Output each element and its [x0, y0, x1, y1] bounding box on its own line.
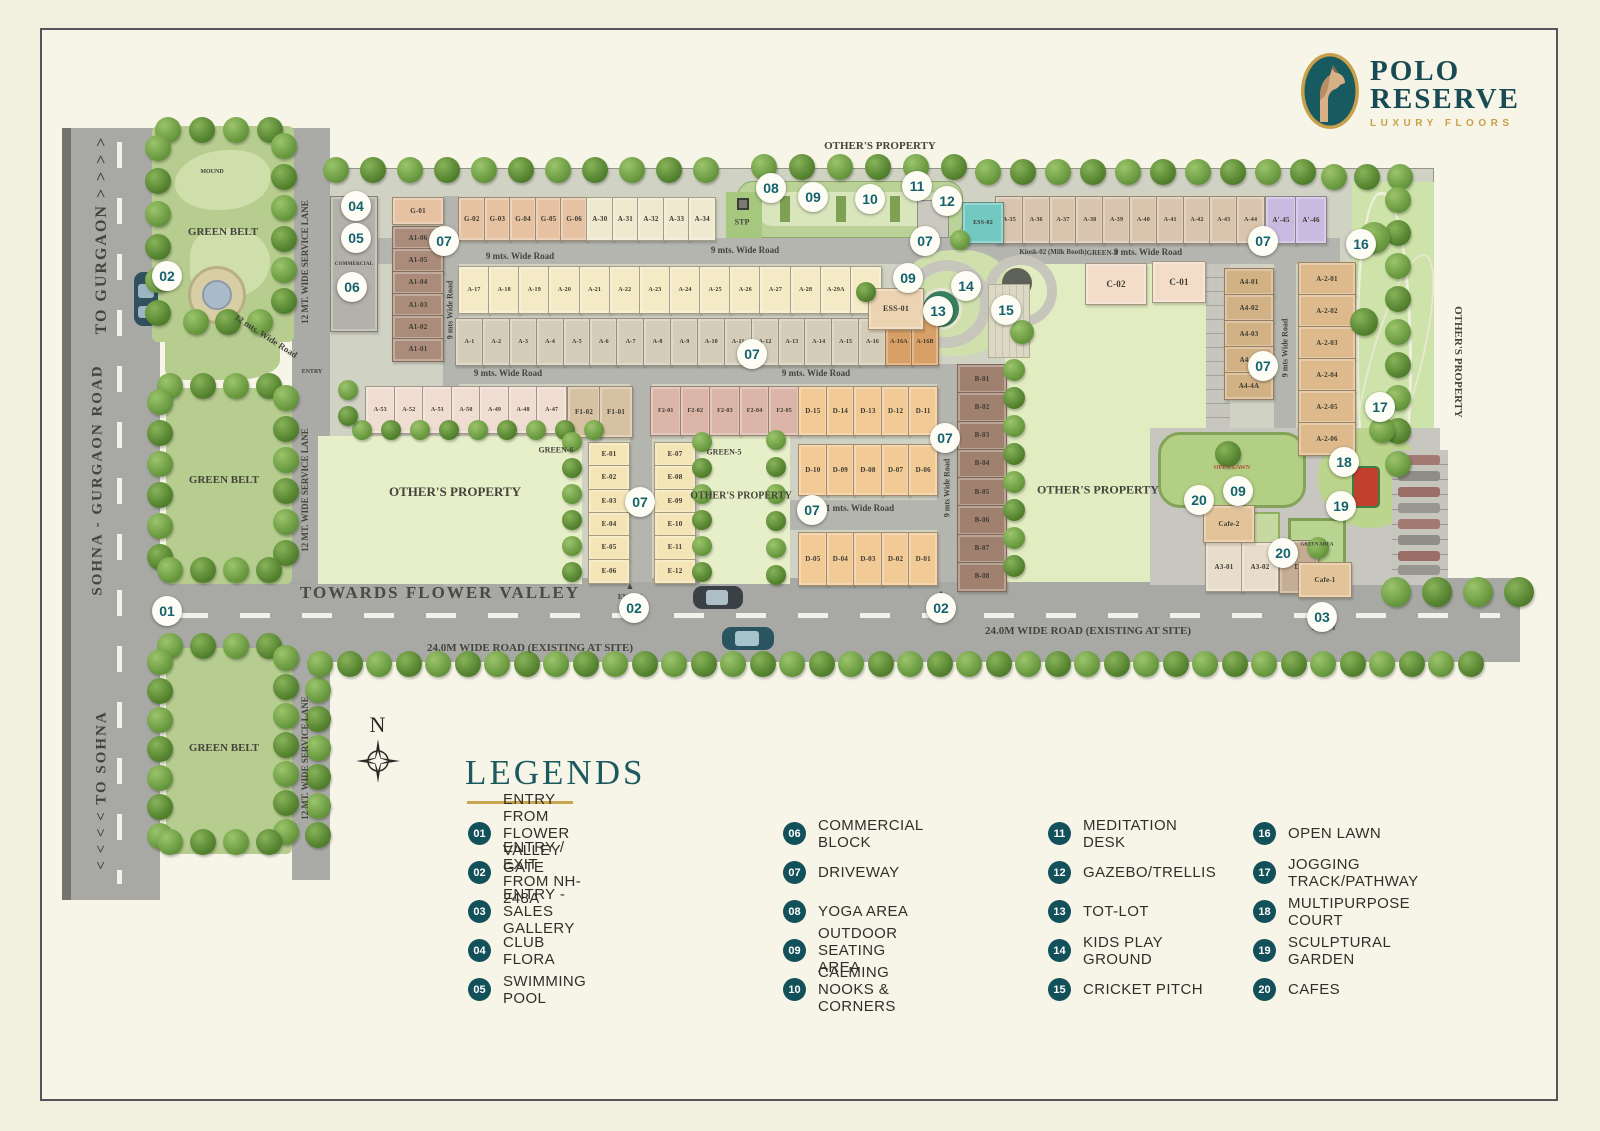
building-unit-a-36: A-36: [1022, 196, 1051, 244]
building-unit-label: A-16: [866, 339, 879, 345]
building-unit-d-07: D-07: [881, 444, 911, 496]
tree-icon: [950, 230, 970, 250]
parked-car: [1398, 519, 1440, 529]
tree-icon: [692, 536, 712, 556]
building-unit-a-27: A-27: [759, 266, 791, 314]
building-unit-a-2: A-2: [482, 318, 511, 366]
building-unit-a-7: A-7: [616, 318, 645, 366]
map-label: 12 MT. WIDE SERVICE LANE: [300, 696, 310, 820]
legend-item-14: 14KIDS PLAY GROUND: [1048, 939, 1216, 962]
building-unit-a-23: A-23: [639, 266, 671, 314]
tree-icon: [366, 651, 392, 677]
tree-icon: [1074, 651, 1100, 677]
tree-icon: [147, 707, 173, 733]
building-unit-label: A4-02: [1240, 305, 1259, 312]
building-unit-label: G-06: [566, 216, 582, 223]
legend-number-badge: 13: [1048, 900, 1071, 923]
tree-icon: [526, 420, 546, 440]
legend-column-3: 11MEDITATION DESK12GAZEBO/TRELLIS13TOT-L…: [1048, 822, 1216, 1017]
legend-number-badge: 04: [468, 939, 491, 962]
legend-item-08: 08YOGA AREA: [783, 900, 923, 923]
building-unit-a-2-04: A-2-04: [1298, 358, 1356, 392]
tree-icon: [562, 562, 582, 582]
building-unit-label: A-26: [739, 287, 752, 293]
building-unit-e-08: E-08: [654, 465, 696, 490]
map-marker-07: 07: [625, 487, 655, 517]
building-unit-e-12: E-12: [654, 559, 696, 584]
building-unit-label: A-9: [679, 339, 689, 345]
building-unit-label: A-8: [653, 339, 663, 345]
tree-icon: [1350, 308, 1378, 336]
tree-icon: [223, 633, 249, 659]
tree-icon: [145, 201, 171, 227]
building-unit-label: E-01: [602, 451, 617, 458]
building-unit-label: A1-03: [409, 302, 428, 309]
tree-icon: [425, 651, 451, 677]
tree-icon: [692, 458, 712, 478]
map-label: GREEN-4: [1087, 249, 1118, 257]
building-unit-e-06: E-06: [588, 559, 630, 584]
building-unit-label: A-47: [545, 407, 558, 413]
legend-item-11: 11MEDITATION DESK: [1048, 822, 1216, 845]
building-unit-label: A-7: [626, 339, 636, 345]
building-unit-f2-02: F2-02: [680, 386, 712, 436]
building-unit-d-09: D-09: [826, 444, 856, 496]
legend-item-03: 03ENTRY - SALES GALLERY: [468, 900, 586, 923]
legend-item-04: 04CLUB FLORA: [468, 939, 586, 962]
building-unit-label: A-22: [618, 287, 631, 293]
map-marker-06: 06: [337, 272, 367, 302]
legend-item-label: CRICKET PITCH: [1083, 981, 1203, 998]
tree-icon: [147, 649, 173, 675]
building-unit-label: A-41: [1164, 217, 1177, 223]
legend-column-4: 16OPEN LAWN17JOGGING TRACK/PATHWAY18MULT…: [1253, 822, 1418, 1017]
building-unit-label: C-02: [1106, 280, 1125, 289]
tree-icon: [1354, 164, 1380, 190]
tree-icon: [1504, 577, 1534, 607]
legend-number-badge: 18: [1253, 900, 1276, 923]
tree-icon: [766, 511, 786, 531]
building-unit-a-21: A-21: [579, 266, 611, 314]
building-unit-a-38: A-38: [1075, 196, 1104, 244]
legend-item-13: 13TOT-LOT: [1048, 900, 1216, 923]
building-unit-label: A-20: [558, 287, 571, 293]
building-unit-d-12: D-12: [881, 386, 911, 436]
building-unit-b-01: B-01: [957, 364, 1007, 394]
yoga-hedge-1: [780, 196, 790, 222]
building-unit-label: A-10: [705, 339, 718, 345]
building-unit-label: D-05: [805, 556, 820, 563]
building-unit-label: D-04: [833, 556, 848, 563]
building-unit-label: A1-05: [409, 257, 428, 264]
map-marker-07: 07: [910, 226, 940, 256]
building-unit-a-31: A-31: [612, 197, 640, 241]
tree-icon: [1104, 651, 1130, 677]
tree-icon: [223, 557, 249, 583]
building-unit-g-01: G-01: [392, 197, 444, 225]
building-unit-b-05: B-05: [957, 477, 1007, 507]
building-unit-label: A1-01: [409, 346, 428, 353]
building-unit-label: F2-01: [658, 408, 674, 414]
brand-logo: POLO RESERVE LUXURY FLOORS: [1300, 52, 1520, 135]
map-marker-20: 20: [1268, 538, 1298, 568]
building-unit-label: E-05: [602, 544, 617, 551]
building-unit-e-10: E-10: [654, 512, 696, 537]
legend-number-badge: 03: [468, 900, 491, 923]
building-unit-label: A-2-05: [1316, 404, 1337, 411]
map-label: OTHER'S PROPERTY: [1452, 306, 1464, 418]
tree-icon: [360, 157, 386, 183]
tree-icon: [545, 157, 571, 183]
tree-icon: [1385, 451, 1411, 477]
map-label: GREEN AREA: [1301, 543, 1334, 548]
building-unit-label: A-32: [643, 216, 658, 223]
building-unit-f2-05: F2-05: [768, 386, 800, 436]
tree-icon: [1163, 651, 1189, 677]
tree-icon: [273, 703, 299, 729]
tree-icon: [484, 651, 510, 677]
legend-number-badge: 02: [468, 861, 491, 884]
building-unit-e-11: E-11: [654, 535, 696, 560]
building-unit-e-02: E-02: [588, 465, 630, 490]
building-unit-a-4: A-4: [536, 318, 565, 366]
parked-car: [1398, 487, 1440, 497]
legend-item-label: MEDITATION DESK: [1083, 817, 1216, 851]
building-unit-a-2-03: A-2-03: [1298, 326, 1356, 360]
brand-name-line2: RESERVE: [1370, 86, 1520, 114]
building-unit-a-41: A-41: [1156, 196, 1185, 244]
legend-number-badge: 11: [1048, 822, 1071, 845]
tree-icon: [273, 732, 299, 758]
building-unit-label: A-14: [812, 339, 825, 345]
building-unit-a-17: A-17: [458, 266, 490, 314]
building-unit-label: G-01: [410, 208, 426, 215]
building-unit-label: A-33: [669, 216, 684, 223]
building-unit-label: A-34: [695, 216, 710, 223]
map-marker-07: 07: [737, 339, 767, 369]
building-unit-label: A-16B: [916, 339, 933, 345]
map-marker-07: 07: [429, 226, 459, 256]
map-label: TO GURGAON > > > >: [93, 136, 111, 335]
building-unit-label: E-11: [668, 544, 682, 551]
building-unit-g-03: G-03: [484, 197, 512, 241]
legend-number-badge: 10: [783, 978, 806, 1001]
building-unit-label: A-49: [488, 407, 501, 413]
legend-item-15: 15CRICKET PITCH: [1048, 978, 1216, 1001]
building-unit-label: F2-02: [688, 408, 704, 414]
map-marker-05: 05: [341, 223, 371, 253]
map-marker-08: 08: [756, 173, 786, 203]
building-unit-label: E-10: [668, 521, 683, 528]
map-marker-07: 07: [797, 495, 827, 525]
legend-item-20: 20CAFES: [1253, 978, 1418, 1001]
building-unit-label: A-28: [799, 287, 812, 293]
map-marker-19: 19: [1326, 491, 1356, 521]
tree-icon: [471, 157, 497, 183]
building-unit-d-14: D-14: [826, 386, 856, 436]
tree-icon: [856, 282, 876, 302]
tree-icon: [838, 651, 864, 677]
legend-number-badge: 01: [468, 822, 491, 845]
left-road-dash: [117, 142, 122, 884]
tree-icon: [223, 829, 249, 855]
building-unit-d-10: D-10: [798, 444, 828, 496]
map-label: 9 mts Wide Road: [1281, 319, 1290, 378]
building-unit-f1-01: F1-01: [599, 386, 633, 438]
tree-icon: [338, 406, 358, 426]
building-unit-a-1: A-1: [455, 318, 484, 366]
building-unit-label: B-02: [975, 404, 990, 411]
building-unit-label: E-02: [602, 474, 617, 481]
tree-icon: [307, 651, 333, 677]
building-unit-a-43: A-43: [1209, 196, 1238, 244]
legend-item-label: CLUB FLORA: [503, 934, 586, 968]
tree-icon: [468, 420, 488, 440]
tree-icon: [145, 300, 171, 326]
building-unit-label: A'-46: [1302, 217, 1319, 224]
tree-icon: [223, 373, 249, 399]
tree-icon: [273, 790, 299, 816]
tree-icon: [147, 765, 173, 791]
map-label: OPEN LAWN: [1214, 465, 1250, 471]
tree-icon: [273, 416, 299, 442]
building-unit-a4-01: A4-01: [1224, 268, 1274, 296]
tree-icon: [868, 651, 894, 677]
legend-number-badge: 05: [468, 978, 491, 1001]
tree-icon: [439, 420, 459, 440]
building-unit-label: A-40: [1137, 217, 1150, 223]
tree-icon: [256, 557, 282, 583]
legend-item-label: GAZEBO/TRELLIS: [1083, 864, 1216, 881]
tree-icon: [1015, 651, 1041, 677]
map-marker-07: 07: [1248, 226, 1278, 256]
map-label: 9 mts Wide Road: [943, 459, 952, 518]
building-unit-label: A'-45: [1272, 217, 1289, 224]
legend-number-badge: 17: [1253, 861, 1276, 884]
map-label: GREEN BELT: [189, 474, 259, 486]
map-label: GREEN BELT: [189, 742, 259, 754]
building-unit-label: B-08: [975, 573, 990, 580]
building-unit-b-07: B-07: [957, 534, 1007, 564]
legend-number-badge: 08: [783, 900, 806, 923]
building-unit-a4-02: A4-02: [1224, 294, 1274, 322]
legend-item-label: MULTIPURPOSE COURT: [1288, 895, 1418, 929]
tree-icon: [271, 288, 297, 314]
tree-icon: [1003, 415, 1025, 437]
tree-icon: [147, 513, 173, 539]
building-unit-a-8: A-8: [643, 318, 672, 366]
brand-text: POLO RESERVE LUXURY FLOORS: [1370, 58, 1520, 129]
tree-icon: [1003, 387, 1025, 409]
building-unit-label: E-08: [668, 474, 683, 481]
map-label: 24.0M WIDE ROAD (EXISTING AT SITE): [985, 625, 1191, 637]
tree-icon: [271, 226, 297, 252]
building-unit-label: F2-04: [747, 408, 763, 414]
building-unit-label: A-39: [1110, 217, 1123, 223]
left-road-edge: [62, 128, 71, 900]
tree-icon: [273, 447, 299, 473]
building-unit-label: A-18: [498, 287, 511, 293]
map-marker-09: 09: [798, 182, 828, 212]
tree-icon: [1385, 352, 1411, 378]
legend-item-label: OPEN LAWN: [1288, 825, 1381, 842]
map-label: < < < < TO SOHNA: [94, 710, 111, 869]
building-unit-b-02: B-02: [957, 392, 1007, 422]
legend-item-label: KIDS PLAY GROUND: [1083, 934, 1216, 968]
tree-icon: [656, 157, 682, 183]
building-unit-cafe-1: Cafe-1: [1298, 562, 1352, 598]
building-unit-label: D-03: [860, 556, 875, 563]
map-label: 9 mts. Wide Road: [782, 368, 850, 378]
tree-icon: [1185, 159, 1211, 185]
tree-icon: [827, 154, 853, 180]
bottom-road-dash: [178, 613, 1500, 618]
building-unit-label: E-07: [668, 451, 683, 458]
tree-icon: [271, 164, 297, 190]
building-unit-label: A-4: [545, 339, 555, 345]
building-unit-label: E-03: [602, 498, 617, 505]
tree-icon: [147, 678, 173, 704]
building-unit-label: G-04: [515, 216, 531, 223]
legend-item-12: 12GAZEBO/TRELLIS: [1048, 861, 1216, 884]
map-label: OTHER'S PROPERTY: [1037, 483, 1159, 498]
tree-icon: [1307, 537, 1329, 559]
building-unit-label: D-07: [888, 467, 903, 474]
legend-column-1: 01ENTRY FROM FLOWER VALLEY GATE02ENTRY /…: [468, 822, 586, 1017]
building-unit-d-13: D-13: [853, 386, 883, 436]
tree-icon: [271, 133, 297, 159]
tree-icon: [927, 651, 953, 677]
tree-icon: [145, 168, 171, 194]
tree-icon: [602, 651, 628, 677]
map-marker-14: 14: [951, 271, 981, 301]
building-unit-a-29a: A-29A: [820, 266, 852, 314]
tree-icon: [1220, 159, 1246, 185]
building-unit-a-37: A-37: [1049, 196, 1078, 244]
tree-icon: [1222, 651, 1248, 677]
parked-car: [1398, 503, 1440, 513]
tree-icon: [337, 651, 363, 677]
building-unit-label: A-25: [709, 287, 722, 293]
legend-number-badge: 14: [1048, 939, 1071, 962]
building-unit-a-2-02: A-2-02: [1298, 294, 1356, 328]
building-unit-g-05: G-05: [535, 197, 563, 241]
legend-item-02: 02ENTRY / EXIT FROM NH-248A: [468, 861, 586, 884]
building-unit-label: A-27: [769, 287, 782, 293]
legend-item-07: 07DRIVEWAY: [783, 861, 923, 884]
building-unit-a-14: A-14: [804, 318, 833, 366]
building-unit-a-15: A-15: [831, 318, 860, 366]
building-unit-a1-02: A1-02: [392, 315, 444, 339]
tree-icon: [338, 380, 358, 400]
building-unit-label: Cafe-1: [1314, 577, 1335, 584]
tree-icon: [183, 309, 209, 335]
building-unit-c-01: C-01: [1152, 261, 1206, 303]
building-unit-a-40: A-40: [1129, 196, 1158, 244]
building-unit-a-6: A-6: [589, 318, 618, 366]
tree-icon: [809, 651, 835, 677]
map-label: 11 mts. Wide Road: [822, 503, 894, 513]
building-unit-label: D-09: [833, 467, 848, 474]
horse-emblem-icon: [1300, 52, 1360, 135]
tree-icon: [865, 154, 891, 180]
building-unit-label: D-02: [888, 556, 903, 563]
tree-icon: [396, 651, 422, 677]
brand-name-line1: POLO: [1370, 58, 1520, 86]
building-unit-label: F2-05: [776, 408, 792, 414]
legend-title: LEGENDS: [465, 753, 645, 793]
building-unit-a-18: A-18: [488, 266, 520, 314]
map-marker-09: 09: [893, 263, 923, 293]
building-unit-label: D-11: [916, 408, 931, 415]
building-unit-label: A-19: [528, 287, 541, 293]
building-unit-label: A-48: [517, 407, 530, 413]
tree-icon: [190, 557, 216, 583]
tree-icon: [223, 117, 249, 143]
lawn-left: [318, 436, 582, 584]
tree-icon: [1133, 651, 1159, 677]
tree-icon: [189, 117, 215, 143]
building-unit-label: A-30: [592, 216, 607, 223]
building-unit-label: A1-04: [409, 279, 428, 286]
map-label: 9 mts. Wide Road: [474, 368, 542, 378]
legend-item-label: TOT-LOT: [1083, 903, 1149, 920]
building-unit-label: A4-4A: [1239, 383, 1259, 390]
building-unit-d-02: D-02: [881, 532, 911, 586]
tree-icon: [1003, 499, 1025, 521]
tree-icon: [147, 389, 173, 415]
map-marker-02: 02: [152, 261, 182, 291]
tree-icon: [1115, 159, 1141, 185]
tree-icon: [619, 157, 645, 183]
building-unit-label: ESS-01: [883, 305, 909, 313]
map-label: 12 MT. WIDE SERVICE LANE: [300, 200, 310, 324]
building-unit-label: A-52: [402, 407, 415, 413]
building-unit-label: G-05: [541, 216, 557, 223]
tree-icon: [147, 451, 173, 477]
tree-icon: [1381, 577, 1411, 607]
tree-icon: [273, 674, 299, 700]
building-unit-label: D-10: [805, 467, 820, 474]
tree-icon: [147, 794, 173, 820]
building-unit-label: A-21: [588, 287, 601, 293]
building-unit-label: D-01: [916, 556, 931, 563]
map-label: MOUND: [200, 169, 223, 175]
tree-icon: [273, 509, 299, 535]
tree-icon: [1003, 471, 1025, 493]
tree-icon: [1310, 651, 1336, 677]
tree-icon: [190, 633, 216, 659]
tree-icon: [145, 135, 171, 161]
map-label: STP: [735, 218, 750, 227]
tree-icon: [190, 373, 216, 399]
building-unit-g-06: G-06: [560, 197, 588, 241]
building-unit-e-04: E-04: [588, 512, 630, 537]
building-unit-label: A-37: [1056, 217, 1069, 223]
building-unit-a4-03: A4-03: [1224, 320, 1274, 348]
building-unit-label: A-29A: [827, 287, 845, 293]
tree-icon: [271, 195, 297, 221]
map-marker-04: 04: [341, 191, 371, 221]
legend-item-16: 16OPEN LAWN: [1253, 822, 1418, 845]
building-unit-label: ESS-02: [973, 220, 993, 226]
map-marker-09: 09: [1223, 476, 1253, 506]
building-unit-g-02: G-02: [458, 197, 486, 241]
building-unit-label: D-13: [860, 408, 875, 415]
tree-icon: [147, 482, 173, 508]
building-unit-a-2-01: A-2-01: [1298, 262, 1356, 296]
tree-icon: [1428, 651, 1454, 677]
